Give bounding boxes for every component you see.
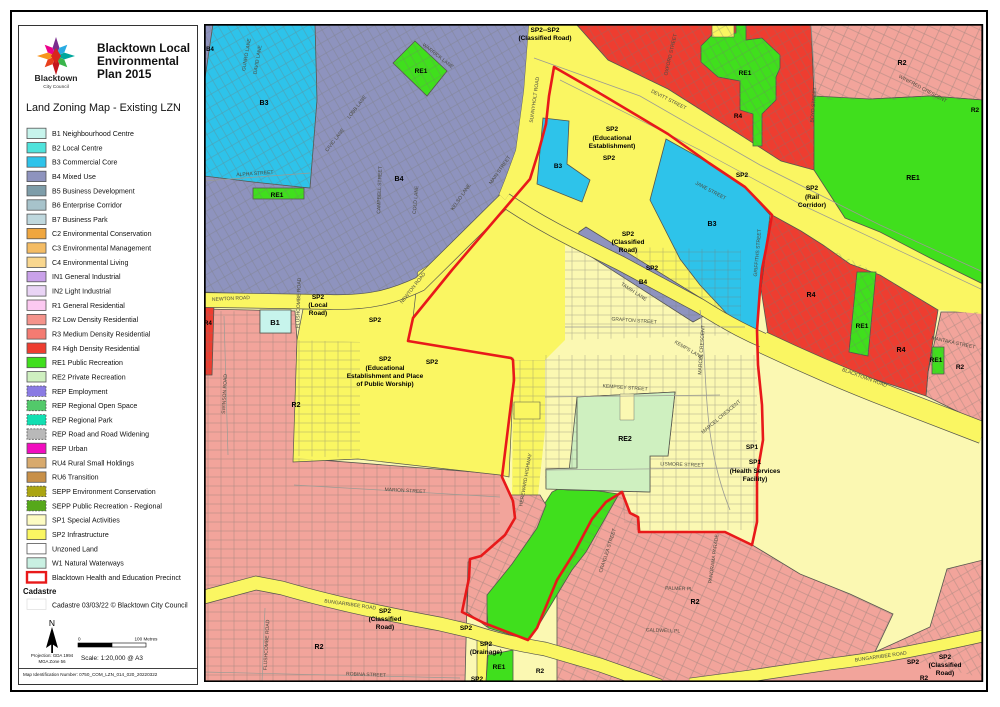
- svg-text:Establishment): Establishment): [589, 143, 636, 150]
- svg-text:MGA Zone 56: MGA Zone 56: [38, 659, 66, 664]
- svg-text:REP Road and Road Widening: REP Road and Road Widening: [52, 432, 149, 439]
- svg-text:SP2: SP2: [379, 608, 392, 615]
- svg-text:R4: R4: [897, 347, 906, 354]
- svg-text:R2 Low Density Residential: R2 Low Density Residential: [52, 317, 139, 324]
- svg-text:SP1: SP1: [749, 459, 762, 466]
- svg-text:B5 Business Development: B5 Business Development: [52, 188, 135, 195]
- svg-text:SP2: SP2: [646, 265, 659, 272]
- svg-text:R3 Medium Density Residential: R3 Medium Density Residential: [52, 332, 151, 339]
- svg-text:R1 General Residential: R1 General Residential: [52, 303, 125, 310]
- svg-text:Unzoned Land: Unzoned Land: [52, 546, 98, 553]
- svg-text:SP2 Infrastructure: SP2 Infrastructure: [52, 532, 109, 539]
- svg-text:Road): Road): [619, 247, 637, 254]
- svg-text:REP Regional Park: REP Regional Park: [52, 417, 113, 424]
- svg-text:Cadastre 03/03/22 © Blacktown: Cadastre 03/03/22 © Blacktown City Counc…: [52, 602, 188, 610]
- svg-text:Scale: 1:20,000 @ A3: Scale: 1:20,000 @ A3: [81, 655, 143, 662]
- svg-text:R4: R4: [807, 292, 816, 299]
- svg-text:SP2: SP2: [939, 654, 952, 661]
- svg-text:(Local: (Local: [308, 302, 327, 309]
- svg-text:(Drainage): (Drainage): [470, 649, 502, 656]
- svg-text:SP2: SP2: [480, 641, 493, 648]
- svg-text:C4 Environmental Living: C4 Environmental Living: [52, 260, 128, 267]
- svg-text:B3 Commercial Core: B3 Commercial Core: [52, 160, 117, 167]
- svg-text:SP2: SP2: [312, 294, 325, 301]
- svg-text:CALDWELL PL: CALDWELL PL: [646, 627, 681, 634]
- svg-text:(Rail: (Rail: [805, 194, 819, 201]
- svg-text:B3: B3: [554, 163, 563, 170]
- svg-text:Map Identification Number: 075: Map Identification Number: 0750_COM_LZN_…: [23, 672, 158, 677]
- svg-text:SP2: SP2: [379, 356, 392, 363]
- svg-text:R2: R2: [691, 599, 700, 606]
- svg-text:SP2: SP2: [460, 625, 473, 632]
- svg-text:RE1 Public Recreation: RE1 Public Recreation: [52, 360, 123, 367]
- svg-text:IN1 General Industrial: IN1 General Industrial: [52, 274, 121, 281]
- svg-text:R2: R2: [898, 60, 907, 67]
- svg-text:(Classified Road): (Classified Road): [518, 35, 571, 42]
- svg-text:B4: B4: [639, 279, 648, 286]
- svg-text:Blacktown Health and Education: Blacktown Health and Education Precinct: [52, 575, 181, 582]
- svg-text:RE2: RE2: [618, 436, 632, 443]
- svg-text:IN2 Light Industrial: IN2 Light Industrial: [52, 289, 111, 296]
- svg-text:City Council: City Council: [43, 84, 69, 90]
- svg-text:B4: B4: [206, 47, 214, 53]
- svg-text:R4: R4: [734, 113, 743, 120]
- svg-text:B3: B3: [260, 100, 269, 107]
- svg-text:RE1: RE1: [739, 70, 752, 77]
- svg-text:Corridor): Corridor): [798, 202, 826, 209]
- svg-text:R4 High Density Residential: R4 High Density Residential: [52, 346, 140, 353]
- svg-text:B2 Local Centre: B2 Local Centre: [52, 145, 103, 152]
- svg-text:Blacktown: Blacktown: [35, 73, 78, 83]
- svg-text:Cadastre: Cadastre: [23, 587, 57, 596]
- svg-text:B7 Business Park: B7 Business Park: [52, 217, 108, 224]
- svg-text:0: 0: [78, 637, 81, 642]
- svg-text:RE1: RE1: [906, 175, 920, 182]
- svg-text:SP2: SP2: [907, 659, 920, 666]
- svg-text:R2: R2: [315, 644, 324, 651]
- svg-text:Facility): Facility): [743, 476, 768, 483]
- svg-text:Road): Road): [376, 624, 394, 631]
- svg-text:SP2: SP2: [603, 155, 616, 162]
- svg-text:SEPP Environment Conservation: SEPP Environment Conservation: [52, 489, 156, 496]
- svg-text:Plan 2015: Plan 2015: [97, 67, 152, 81]
- svg-text:(Health Services: (Health Services: [730, 468, 781, 475]
- svg-text:W1 Natural Waterways: W1 Natural Waterways: [52, 561, 124, 568]
- svg-text:RE1: RE1: [415, 68, 428, 75]
- svg-text:R2: R2: [536, 668, 545, 675]
- svg-text:R2: R2: [971, 107, 980, 114]
- svg-text:R2: R2: [292, 402, 301, 409]
- svg-text:N: N: [49, 618, 55, 628]
- svg-text:Environmental: Environmental: [97, 54, 179, 68]
- svg-text:(Educational: (Educational: [365, 365, 404, 372]
- svg-text:(Classified: (Classified: [369, 616, 402, 623]
- svg-text:RE1: RE1: [493, 664, 506, 671]
- svg-text:(Classified: (Classified: [929, 662, 962, 669]
- svg-text:RU6 Transition: RU6 Transition: [52, 475, 99, 482]
- svg-text:SP2: SP2: [736, 172, 749, 179]
- svg-text:PALMER PL: PALMER PL: [665, 586, 693, 593]
- svg-text:RE1: RE1: [930, 357, 943, 364]
- svg-text:B1 Neighbourhood Centre: B1 Neighbourhood Centre: [52, 131, 134, 138]
- svg-text:R2: R2: [956, 364, 965, 371]
- svg-text:C2 Environmental Conservation: C2 Environmental Conservation: [52, 231, 152, 238]
- svg-text:B6 Enterprise Corridor: B6 Enterprise Corridor: [52, 203, 123, 210]
- svg-text:SP2: SP2: [426, 359, 439, 366]
- svg-text:SP2--SP2: SP2--SP2: [531, 27, 560, 34]
- svg-text:(Classified: (Classified: [612, 239, 645, 246]
- svg-text:RU4 Rural Small Holdings: RU4 Rural Small Holdings: [52, 460, 134, 467]
- svg-text:Land Zoning Map - Existing LZN: Land Zoning Map - Existing LZN: [26, 102, 181, 114]
- svg-text:Blacktown Local: Blacktown Local: [97, 41, 190, 55]
- svg-text:(Educational: (Educational: [592, 135, 631, 142]
- svg-text:REP Regional Open Space: REP Regional Open Space: [52, 403, 137, 410]
- svg-text:Road): Road): [309, 310, 327, 317]
- svg-text:100 Metres: 100 Metres: [135, 637, 159, 642]
- svg-text:RE1: RE1: [856, 323, 869, 330]
- svg-text:SP2: SP2: [606, 126, 619, 133]
- svg-text:SEPP Public Recreation - Regio: SEPP Public Recreation - Regional: [52, 503, 162, 510]
- svg-text:RE1: RE1: [271, 192, 284, 199]
- svg-text:SP2: SP2: [369, 317, 382, 324]
- svg-text:B4 Mixed Use: B4 Mixed Use: [52, 174, 96, 181]
- svg-text:C3 Environmental Management: C3 Environmental Management: [52, 246, 151, 253]
- svg-text:Establishment and Place: Establishment and Place: [347, 373, 424, 380]
- svg-text:Road): Road): [936, 670, 954, 677]
- svg-text:SP2: SP2: [806, 185, 819, 192]
- svg-text:B4: B4: [395, 176, 404, 183]
- svg-text:SP1: SP1: [746, 444, 759, 451]
- svg-text:SP2: SP2: [622, 231, 635, 238]
- svg-text:RE2 Private Recreation: RE2 Private Recreation: [52, 374, 126, 381]
- svg-text:B3: B3: [708, 221, 717, 228]
- svg-text:REP Employment: REP Employment: [52, 389, 108, 396]
- svg-text:SP1 Special Activities: SP1 Special Activities: [52, 518, 120, 525]
- svg-text:B1: B1: [270, 318, 280, 327]
- svg-text:of Public Worship): of Public Worship): [356, 381, 413, 388]
- svg-text:REP Urban: REP Urban: [52, 446, 88, 453]
- svg-text:Projection: GDA 1994: Projection: GDA 1994: [31, 653, 74, 658]
